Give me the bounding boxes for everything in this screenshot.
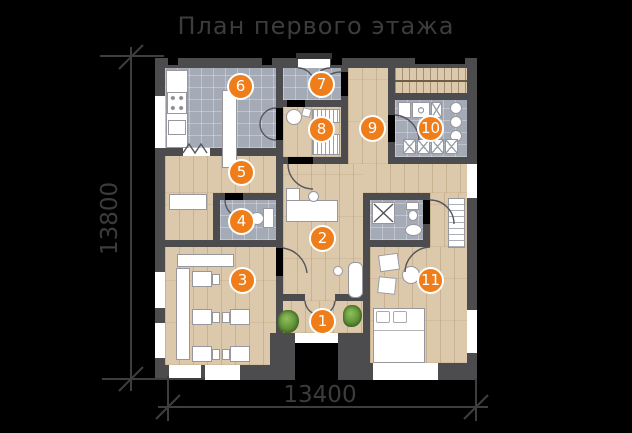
room-marker-1: 1 bbox=[309, 308, 336, 335]
floor-plan-page: { "title": "План первого этажа", "dimens… bbox=[0, 0, 632, 433]
room-marker-11: 11 bbox=[417, 267, 444, 294]
room-marker-2: 2 bbox=[309, 225, 336, 252]
room-marker-5: 5 bbox=[228, 159, 255, 186]
room-marker-3: 3 bbox=[229, 267, 256, 294]
room-marker-4: 4 bbox=[228, 208, 255, 235]
room-marker-6: 6 bbox=[227, 73, 254, 100]
room-marker-10: 10 bbox=[417, 115, 444, 142]
width-dimension-label: 13400 bbox=[240, 382, 400, 408]
room-marker-7: 7 bbox=[308, 71, 335, 98]
room-marker-8: 8 bbox=[308, 116, 335, 143]
room-marker-9: 9 bbox=[359, 115, 386, 142]
floor-plan: 1 2 3 4 5 6 7 8 9 10 11 bbox=[155, 58, 477, 380]
height-dimension-label: 13800 bbox=[97, 162, 127, 274]
